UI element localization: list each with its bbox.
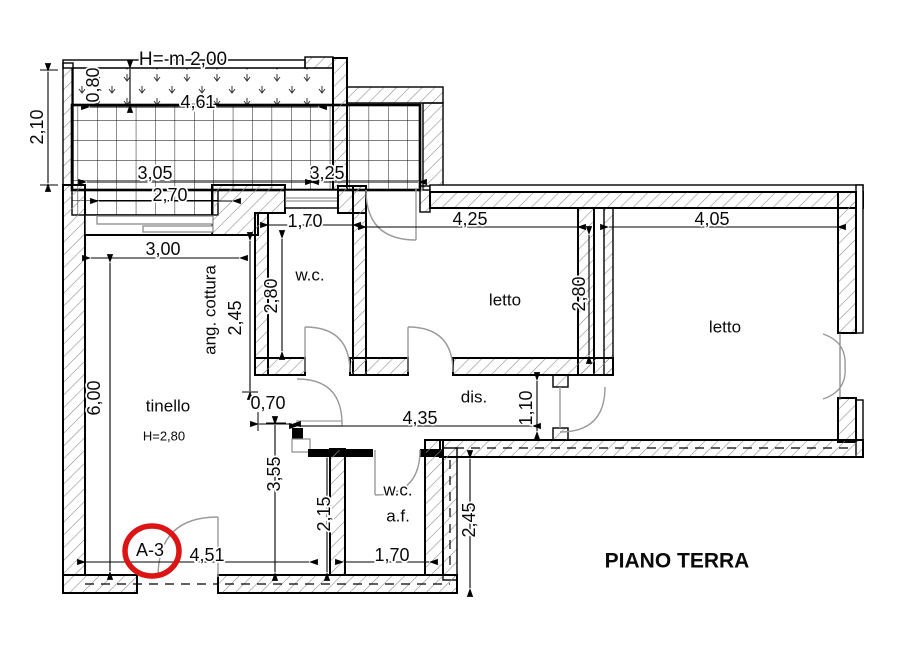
- room-letto2: letto: [709, 317, 741, 336]
- room-wcaf-line2: a.f.: [386, 506, 410, 525]
- dim-terrace-side: 2,10: [27, 109, 47, 144]
- room-wc: w.c.: [294, 265, 324, 284]
- left-exterior-wall: [63, 185, 85, 575]
- dim-wc-width: 1,70: [287, 211, 322, 231]
- corridor-west-step: [292, 439, 310, 452]
- wc-door: [305, 327, 350, 372]
- dim-wcaf-width: 1,70: [374, 545, 409, 565]
- sliding-window-panel-2: [143, 226, 213, 232]
- dim-dis-length: 4,35: [402, 408, 437, 428]
- top-exterior-wall: [430, 192, 863, 208]
- tinello-height-note: H=2,80: [143, 428, 185, 443]
- room-wcaf-line1: w.c.: [382, 480, 412, 499]
- terrace-height-note: H= m 2,00: [139, 49, 227, 70]
- upper-wall-band-vertical: [423, 103, 443, 190]
- dim-letto1-height: 2,80: [569, 276, 589, 311]
- dim-parapet-height: 0,80: [83, 67, 103, 102]
- room-tinello: tinello: [146, 396, 190, 415]
- right-wall-outer-top: [856, 185, 863, 333]
- terrace-tiled-floor: [72, 105, 420, 190]
- plan-title: PIANO TERRA: [605, 550, 750, 573]
- dim-slider-width: 2,70: [152, 185, 187, 205]
- letto1-door-jamb: [420, 186, 430, 212]
- corridor-east-wall-top: [553, 375, 568, 387]
- step-corner-wall: [212, 185, 285, 235]
- room-ang-cottura: ang. cottura: [200, 265, 219, 355]
- right-exterior-wall-top: [838, 192, 856, 333]
- top-wall-outer-line: [430, 185, 863, 192]
- room-letto1: letto: [489, 290, 521, 309]
- corridor-north-wall-a: [255, 358, 305, 375]
- floor-plan-drawing: H= m 2,00 2,10 0,80 4,61 3,05 3,25 2,70 …: [0, 0, 898, 669]
- letto2-french-door: [823, 333, 845, 400]
- dim-span-left: 3,05: [137, 163, 172, 183]
- dim-letto1-width: 4,25: [452, 209, 487, 229]
- corridor-north-wall-b: [350, 358, 408, 375]
- tinello-corridor-door: [297, 379, 342, 426]
- dim-east-wall-height: 2,45: [459, 502, 479, 537]
- letto1-terrace-door: [366, 188, 416, 240]
- dim-tinello-height: 6,00: [84, 380, 104, 415]
- dim-cottura-width: 3,00: [145, 239, 180, 259]
- dim-tinello-width: 4,51: [189, 545, 224, 565]
- dim-dis-width: 1,10: [516, 390, 536, 425]
- dim-stub-width: 0,70: [250, 393, 285, 413]
- corridor-west-column: [292, 428, 303, 439]
- corridor-east-wall-bottom: [553, 428, 568, 440]
- dim-wc-height: 2,80: [261, 278, 281, 313]
- wc-right-wall: [353, 186, 366, 375]
- right-exterior-wall-bottom: [838, 398, 856, 442]
- dim-letto2-width: 4,05: [694, 209, 729, 229]
- letto2-door: [560, 387, 605, 432]
- dim-terrace-top: 4,61: [180, 92, 215, 112]
- sheet-marker-label: A-3: [136, 540, 164, 560]
- letto-partition-wall-b: [604, 208, 613, 375]
- sheet-marker: A-3: [125, 526, 179, 576]
- upper-wall-band: [347, 87, 443, 103]
- floor-plan-canvas: H= m 2,00 2,10 0,80 4,61 3,05 3,25 2,70 …: [0, 0, 898, 669]
- terrace-top-step-wall: [305, 57, 333, 68]
- wcaf-right-wall: [425, 440, 443, 575]
- room-dis: dis.: [461, 387, 487, 406]
- corridor-north-wall-c: [453, 358, 613, 375]
- dim-wcaf-height: 2,15: [314, 496, 334, 531]
- terrace-tiled-floor-ext: [72, 190, 218, 215]
- sliding-window-panel-1: [97, 216, 213, 224]
- dim-span-right: 3,25: [309, 163, 344, 183]
- dim-cottura-height: 2,45: [225, 300, 245, 335]
- dim-tinello-low-height: 3,55: [264, 456, 284, 491]
- letto1-door: [408, 327, 453, 372]
- wc-window: [285, 190, 338, 208]
